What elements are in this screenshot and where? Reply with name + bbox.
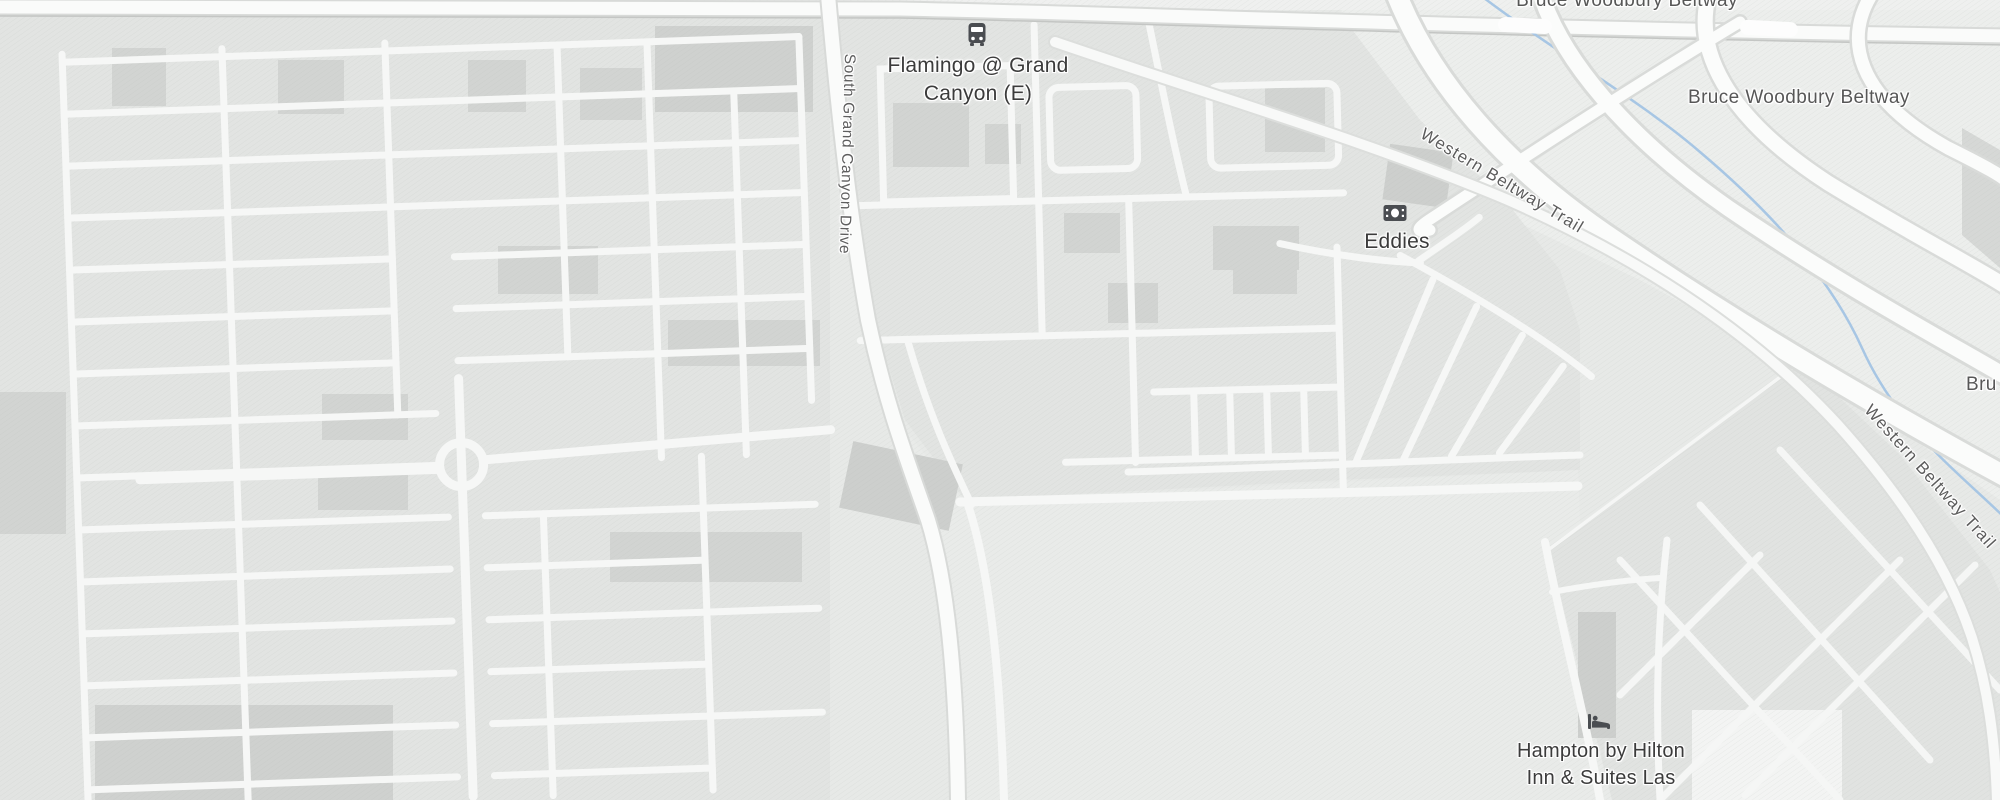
beltway-label-top: Bruce Woodbury Beltway [1516,0,1738,12]
hotel-label-line2: Inn & Suites Las [1517,765,1685,792]
bus-stop-label[interactable]: Flamingo @ Grand Canyon (E) [888,52,1069,108]
bus-stop-icon[interactable] [967,22,987,47]
hotel-label-line1: Hampton by Hilton [1517,738,1685,765]
map-base-layer [0,0,2000,800]
hotel-bed-icon[interactable] [1587,712,1611,731]
map-canvas[interactable]: Flamingo @ Grand Canyon (E) Eddies Hampt… [0,0,2000,800]
bus-stop-label-line2: Canyon (E) [888,80,1069,108]
hotel-label[interactable]: Hampton by Hilton Inn & Suites Las [1517,738,1685,792]
eddies-label[interactable]: Eddies [1364,228,1429,256]
beltway-label-mid: Bruce Woodbury Beltway [1688,87,1910,109]
beltway-label-clipped: Bru [1966,374,1997,396]
bus-stop-label-line1: Flamingo @ Grand [888,52,1069,80]
eddies-banknote-icon[interactable] [1383,204,1407,222]
